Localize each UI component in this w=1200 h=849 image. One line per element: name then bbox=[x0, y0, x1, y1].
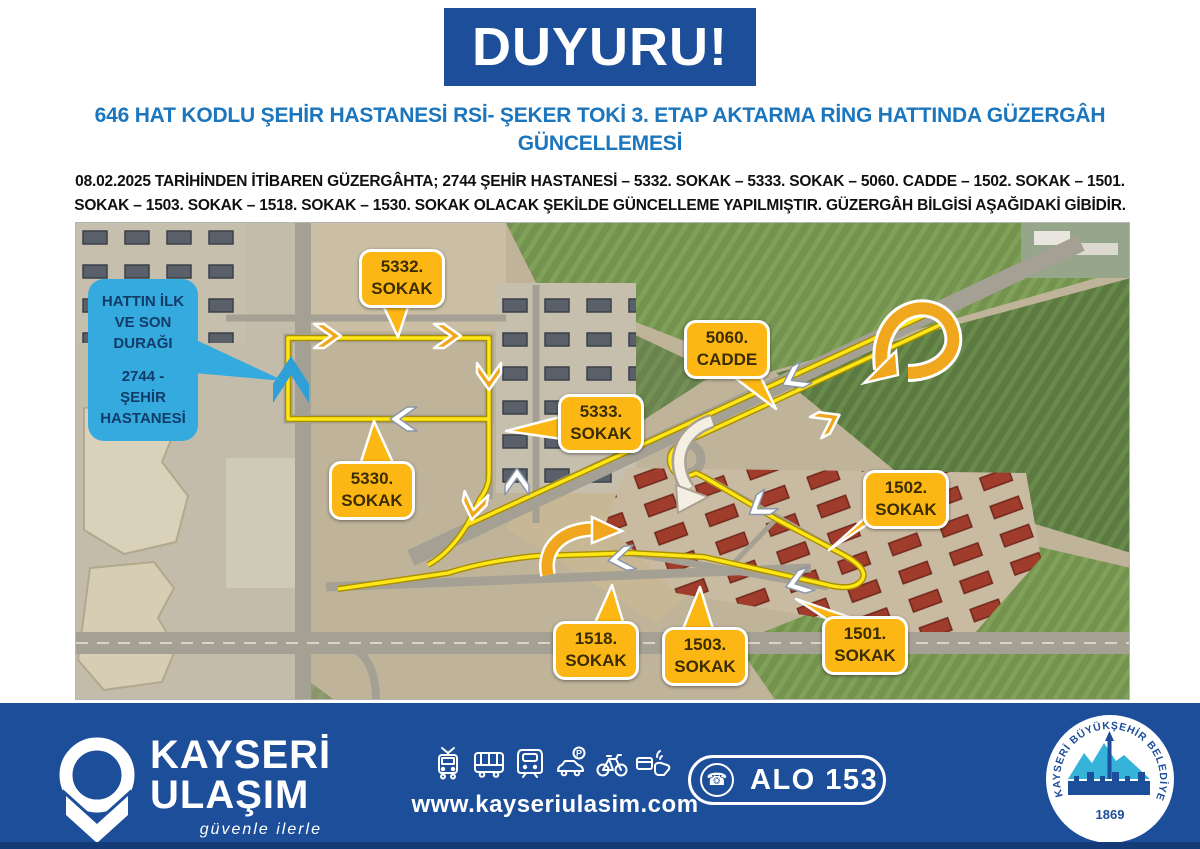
footer: KAYSERİ ULAŞIM güvenle ilerle P bbox=[0, 703, 1200, 849]
street-label-line: CADDE bbox=[696, 349, 758, 371]
contactless-card-icon bbox=[635, 745, 671, 781]
terminal-callout: HATTIN İLK VE SON DURAĞI 2744 - ŞEHİR HA… bbox=[88, 279, 198, 441]
street-label-line: SOKAK bbox=[371, 278, 433, 300]
street-label-5333: 5333. SOKAK bbox=[558, 394, 644, 453]
terminal-stop-line: 2744 - ŞEHİR bbox=[99, 366, 187, 408]
street-label-1518: 1518. SOKAK bbox=[553, 621, 639, 680]
bicycle-icon bbox=[594, 745, 630, 781]
street-label-line: 5060. bbox=[696, 327, 758, 349]
bus-icon bbox=[471, 745, 507, 781]
street-label-line: 5333. bbox=[570, 401, 632, 423]
announcement-banner: DUYURU! bbox=[444, 8, 756, 86]
street-label-line: SOKAK bbox=[875, 499, 937, 521]
phone-icon: ☎ bbox=[700, 763, 734, 797]
brand-tagline: güvenle ilerle bbox=[150, 821, 322, 839]
intro-text: 08.02.2025 TARİHİNDEN İTİBAREN GÜZERGÂHT… bbox=[58, 170, 1143, 218]
metro-icon bbox=[512, 745, 548, 781]
terminal-callout-line: VE SON bbox=[99, 312, 187, 333]
street-label-5330: 5330. SOKAK bbox=[329, 461, 415, 520]
car-parking-icon: P bbox=[553, 745, 589, 781]
street-label-line: SOKAK bbox=[341, 490, 403, 512]
street-label-5060: 5060. CADDE bbox=[684, 320, 770, 379]
terminal-callout-line: DURAĞI bbox=[99, 333, 187, 354]
street-label-line: SOKAK bbox=[565, 650, 627, 672]
street-label-1503: 1503. SOKAK bbox=[662, 627, 748, 686]
terminal-stop-line: HASTANESİ bbox=[99, 408, 187, 429]
tram-icon bbox=[430, 745, 466, 781]
street-label-line: 5332. bbox=[371, 256, 433, 278]
route-map: 5332. SOKAK 5060. CADDE 5333. SOKAK 5330… bbox=[75, 222, 1130, 700]
street-label-line: 1518. bbox=[565, 628, 627, 650]
banner-title: DUYURU! bbox=[472, 17, 728, 77]
announcement-page: DUYURU! 646 HAT KODLU ŞEHİR HASTANESİ RS… bbox=[0, 0, 1200, 849]
phone-number: ALO 153 bbox=[750, 764, 878, 797]
svg-text:P: P bbox=[576, 749, 582, 759]
street-label-line: SOKAK bbox=[570, 423, 632, 445]
seal-year: 1869 bbox=[1096, 807, 1125, 822]
street-label-line: 1502. bbox=[875, 477, 937, 499]
brand-name: KAYSERİ ULAŞIM bbox=[150, 735, 331, 815]
pin-logo-icon bbox=[48, 730, 148, 845]
street-label-5332: 5332. SOKAK bbox=[359, 249, 445, 308]
page-title: 646 HAT KODLU ŞEHİR HASTANESİ RSİ- ŞEKER… bbox=[60, 102, 1140, 159]
street-label-line: SOKAK bbox=[834, 645, 896, 667]
transport-icons: P bbox=[430, 745, 671, 781]
phone-badge: ☎ ALO 153 bbox=[688, 755, 886, 805]
terminal-callout-line: HATTIN İLK bbox=[99, 291, 187, 312]
street-label-line: 1501. bbox=[834, 623, 896, 645]
street-label-1502: 1502. SOKAK bbox=[863, 470, 949, 529]
street-label-line: SOKAK bbox=[674, 656, 736, 678]
municipal-seal: KAYSERİ BÜYÜKŞEHİR BELEDİYESİ 1869 bbox=[1044, 713, 1176, 845]
website-text: www.kayseriulasim.com bbox=[405, 791, 705, 819]
brand-name-line1: KAYSERİ bbox=[150, 735, 331, 775]
brand-name-line2: ULAŞIM bbox=[150, 775, 331, 815]
street-label-line: 5330. bbox=[341, 468, 403, 490]
street-label-line: 1503. bbox=[674, 634, 736, 656]
street-label-1501: 1501. SOKAK bbox=[822, 616, 908, 675]
